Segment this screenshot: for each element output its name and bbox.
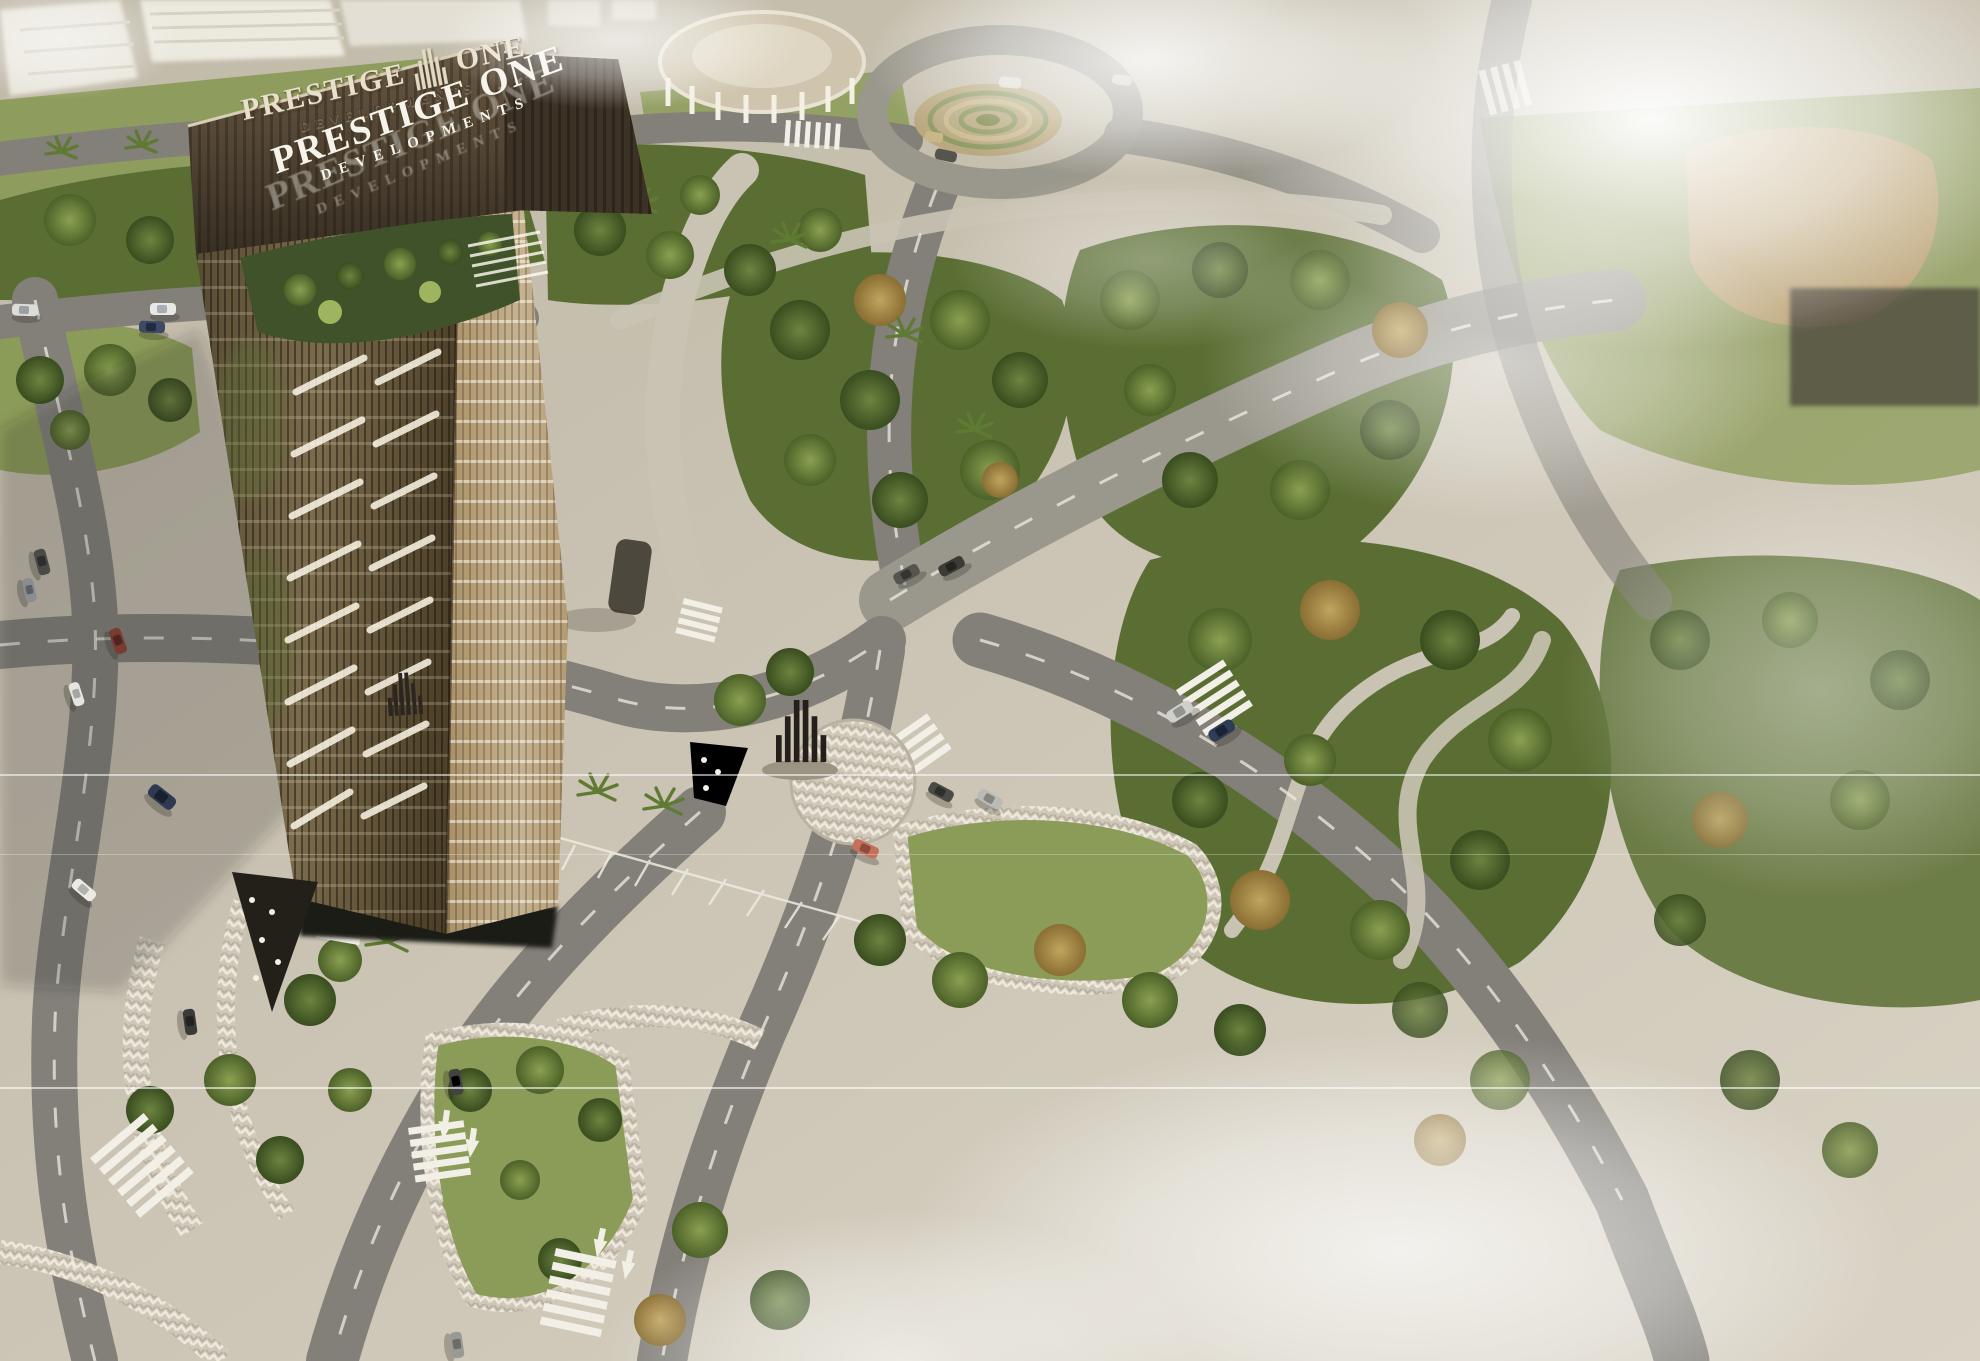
car (999, 76, 1022, 89)
colonnade-roof (692, 24, 832, 88)
circular-chevron-plaza (791, 720, 915, 844)
car (139, 321, 170, 341)
sculpture-base (762, 760, 838, 780)
car (150, 303, 180, 322)
car (12, 304, 43, 324)
aerial-render-scene: PRESTIGE ONE DEVELOPMENTS PRESTIGE ONE D… (0, 0, 1980, 1361)
plaza-tree-1 (714, 674, 766, 726)
dark-building-right (1790, 288, 1980, 406)
plaza-tree-2 (766, 648, 814, 696)
mound-center (976, 114, 1000, 126)
